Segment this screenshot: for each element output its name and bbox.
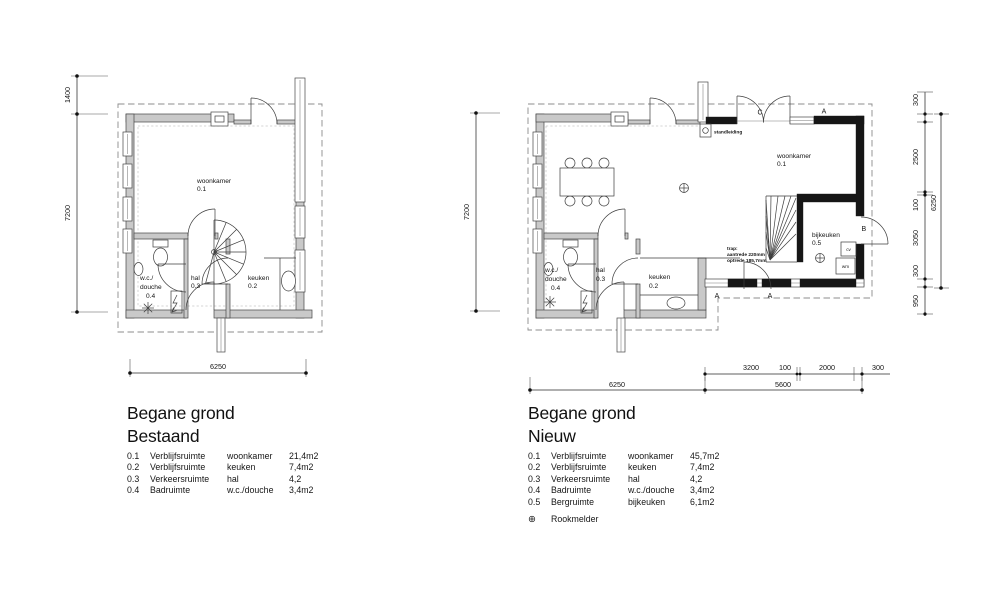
- dim-6250-bottom: 6250: [609, 380, 625, 389]
- hal-door: [188, 209, 215, 236]
- right-plan-legend: 0.1Verblijfsruimtewoonkamer45,7m2 0.2Ver…: [528, 452, 719, 507]
- shower-symbol: [142, 302, 154, 314]
- svg-text:3200: 3200: [743, 363, 759, 372]
- svg-text:300: 300: [911, 94, 920, 106]
- room-label-keuken: keuken: [248, 275, 270, 282]
- floorplan-drawing: woonkamer 0.1 keuken 0.2 hal 0.3 w.c./ d…: [0, 0, 1000, 608]
- section-label-a-top: A: [822, 109, 827, 116]
- left-plan-title: Begane grond Bestaand: [127, 402, 235, 448]
- left-plan-legend: 0.1Verblijfsruimtewoonkamer21,4m2 0.2Ver…: [127, 452, 318, 496]
- section-label-c: C: [757, 110, 762, 117]
- hal-door: [598, 209, 625, 236]
- dim-6250: 6250: [210, 362, 226, 371]
- new-walls: A A A: [705, 109, 864, 301]
- svg-text:300: 300: [872, 363, 884, 372]
- svg-text:3050: 3050: [911, 230, 920, 246]
- rookmelder-symbol: [680, 184, 689, 193]
- svg-text:0.1: 0.1: [197, 186, 206, 193]
- svg-text:2500: 2500: [911, 149, 920, 165]
- kitchen-counter: [264, 258, 296, 310]
- room-label-bijkeuken: bijkeuken: [812, 232, 840, 239]
- cv-unit: cv: [846, 247, 851, 252]
- svg-text:100: 100: [779, 363, 791, 372]
- plan-title-line2: Bestaand: [127, 425, 235, 448]
- svg-text:trap:: trap:: [727, 246, 738, 252]
- rookmelder-legend-row: ⊕Rookmelder: [528, 515, 598, 524]
- front-door: [596, 282, 624, 310]
- top-entry-door: [251, 98, 277, 124]
- section-label-a-bottom1: A: [715, 293, 720, 300]
- flue-box: [611, 112, 628, 126]
- svg-text:0.4: 0.4: [551, 285, 560, 292]
- keuken-door: [612, 258, 638, 284]
- wm-unit: wm: [842, 264, 849, 269]
- rainpipe: [617, 318, 625, 352]
- dim-7200: 7200: [462, 204, 471, 220]
- plan-title-line2: Nieuw: [528, 425, 636, 448]
- dim-5600: 5600: [775, 380, 791, 389]
- svg-text:0.2: 0.2: [649, 283, 658, 290]
- section-label-a-bottom2: A: [768, 293, 773, 300]
- room-label-wc: w.c./: [139, 275, 153, 282]
- svg-text:douche: douche: [140, 284, 162, 291]
- top-entry-door: [650, 98, 676, 124]
- svg-text:300: 300: [911, 265, 920, 277]
- dim-6250-right: 6250: [929, 195, 938, 211]
- svg-text:0.3: 0.3: [596, 276, 605, 283]
- section-label-b: B: [862, 226, 867, 233]
- room-label-hal: hal: [191, 275, 200, 282]
- svg-text:0.3: 0.3: [191, 283, 200, 290]
- rookmelder-label: Rookmelder: [551, 514, 598, 524]
- floorplan-sheet: woonkamer 0.1 keuken 0.2 hal 0.3 w.c./ d…: [0, 0, 1000, 608]
- wall-finish-dashed: [138, 126, 294, 306]
- right-plan-title: Begane grond Nieuw: [528, 402, 636, 448]
- standleiding-label: standleiding: [714, 130, 742, 136]
- rainpipe: [217, 318, 225, 352]
- shower-symbol: [544, 296, 556, 308]
- rookmelder-icon: ⊕: [528, 515, 551, 524]
- left-plan: woonkamer 0.1 keuken 0.2 hal 0.3 w.c./ d…: [63, 74, 322, 377]
- dining-table: [560, 158, 614, 206]
- svg-text:100: 100: [911, 199, 920, 211]
- svg-text:0.4: 0.4: [146, 293, 155, 300]
- room-label-keuken: keuken: [649, 274, 671, 281]
- french-doors: C: [737, 96, 790, 124]
- svg-text:0.2: 0.2: [248, 283, 257, 290]
- dim-7200: 7200: [63, 205, 72, 221]
- staircase: [766, 196, 797, 262]
- svg-text:0.5: 0.5: [812, 240, 821, 247]
- svg-text:aantrede 220mm: aantrede 220mm: [727, 252, 765, 258]
- room-label-wc: w.c./: [544, 267, 558, 274]
- wall-finish-dashed: [546, 126, 700, 306]
- plan-title-line1: Begane grond: [127, 402, 235, 425]
- right-plan: standleiding C A A A: [462, 82, 949, 394]
- svg-text:douche: douche: [545, 276, 567, 283]
- spiral-staircase: [206, 220, 246, 284]
- trap-annotation: trap: aantrede 220mm optrede 185,7mm: [727, 246, 766, 264]
- svg-text:2000: 2000: [819, 363, 835, 372]
- svg-text:0.1: 0.1: [777, 161, 786, 168]
- exterior-walls: [536, 114, 706, 318]
- rookmelder-symbol: [816, 254, 825, 263]
- plan-title-line1: Begane grond: [528, 402, 636, 425]
- room-label-hal: hal: [596, 267, 605, 274]
- bijkeuken-appliances: cv wm: [836, 242, 856, 274]
- standleiding-duct: standleiding: [698, 82, 742, 137]
- room-label-woonkamer: woonkamer: [196, 178, 232, 185]
- svg-text:950: 950: [911, 295, 920, 307]
- back-door: B: [861, 217, 888, 244]
- dim-1400: 1400: [63, 87, 72, 103]
- room-label-woonkamer: woonkamer: [776, 153, 812, 160]
- svg-text:optrede 185,7mm: optrede 185,7mm: [727, 258, 766, 264]
- flue-box: [211, 112, 228, 126]
